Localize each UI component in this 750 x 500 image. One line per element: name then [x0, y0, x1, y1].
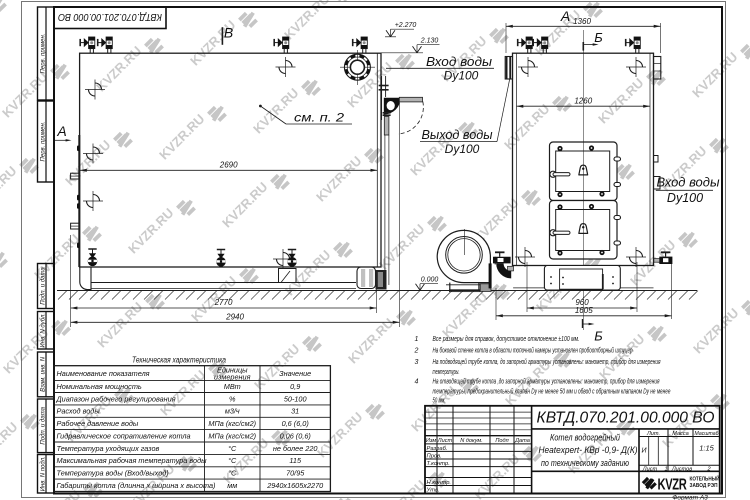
svg-text:1360: 1360: [573, 17, 591, 26]
svg-text:КОТЕЛЬНЫЙ: КОТЕЛЬНЫЙ: [690, 475, 720, 483]
svg-text:КВТД.070.201.00.000 ВО: КВТД.070.201.00.000 ВО: [58, 11, 162, 23]
svg-text:Dy100: Dy100: [667, 191, 703, 205]
svg-text:КВТД.070.201.00.000 ВО: КВТД.070.201.00.000 ВО: [537, 409, 715, 426]
svg-text:0.000: 0.000: [421, 277, 439, 284]
svg-text:Дата: Дата: [514, 438, 530, 444]
svg-text:2940: 2940: [225, 313, 244, 322]
svg-text:На боковой стенке котла в обла: На боковой стенке котла в области топочн…: [433, 347, 633, 355]
svg-text:Гидравлическое сопративление к: Гидравлическое сопративление котла: [57, 431, 191, 440]
svg-text:см. п. 2: см. п. 2: [294, 111, 344, 125]
svg-text:Значение: Значение: [279, 369, 311, 378]
svg-text:Лист: Лист: [437, 438, 453, 444]
svg-text:2: 2: [414, 348, 419, 355]
svg-text:Выход воды: Выход воды: [422, 127, 493, 142]
svg-text:Габариты котла (длинна х ширин: Габариты котла (длинна х ширина х высота…: [57, 481, 216, 490]
svg-text:Перв. примен.: Перв. примен.: [40, 34, 46, 74]
svg-text:Инв. N дубл.: Инв. N дубл.: [40, 313, 46, 348]
svg-text:Dy100: Dy100: [445, 142, 480, 156]
svg-text:2770: 2770: [214, 298, 233, 307]
svg-text:Температура воды (Вход/выход): Температура воды (Вход/выход): [57, 469, 169, 478]
svg-text:Наименование показателя: Наименование показателя: [57, 369, 150, 378]
svg-text:мм: мм: [227, 481, 237, 490]
svg-text:Масса: Масса: [672, 431, 689, 437]
svg-text:Взам. инв. N: Взам. инв. N: [40, 356, 46, 392]
svg-text:Dy100: Dy100: [444, 69, 479, 83]
svg-text:3: 3: [415, 359, 419, 366]
svg-text:°С: °С: [228, 469, 237, 478]
svg-text:Б: Б: [594, 30, 603, 45]
svg-text:Изм: Изм: [426, 438, 437, 444]
svg-text:Температура уходящих газов: Температура уходящих газов: [57, 444, 160, 453]
svg-text:Номинальная мощность: Номинальная мощность: [57, 382, 142, 391]
svg-text:Утв.: Утв.: [426, 488, 440, 494]
svg-text:А: А: [560, 8, 570, 24]
svg-text:0,06 (0,6): 0,06 (0,6): [280, 431, 311, 440]
svg-text:МВт: МВт: [224, 382, 241, 391]
svg-text:0,9: 0,9: [290, 382, 300, 391]
svg-text:Диапазон рабочего регулировани: Диапазон рабочего регулирования: [56, 394, 176, 403]
svg-text:На подводящей трубе котла, до: На подводящей трубе котла, до запорной а…: [433, 358, 661, 366]
svg-text:МПа (кгс/см2): МПа (кгс/см2): [208, 431, 256, 440]
svg-text:50 мм.: 50 мм.: [433, 398, 446, 405]
svg-text:Подп: Подп: [495, 438, 508, 444]
svg-text:Вход воды: Вход воды: [657, 175, 720, 190]
svg-text:31: 31: [291, 407, 299, 416]
svg-text:Расход воды: Расход воды: [57, 407, 101, 416]
svg-text:70/95: 70/95: [286, 469, 305, 478]
svg-text:Формат А3: Формат А3: [672, 495, 708, 500]
svg-text:1:15: 1:15: [699, 443, 714, 452]
svg-text:°С: °С: [228, 444, 237, 453]
svg-text:Вход воды: Вход воды: [426, 54, 492, 69]
svg-text:Котел водогрейный: Котел водогрейный: [550, 432, 621, 443]
svg-text:N докум.: N докум.: [460, 438, 483, 444]
svg-text:KVZR: KVZR: [658, 476, 687, 493]
svg-text:1605: 1605: [575, 306, 593, 315]
svg-text:Техническая характеристика: Техническая характеристика: [132, 356, 227, 365]
svg-text:Разраб.: Разраб.: [427, 446, 448, 452]
svg-text:Heatexpert- КВр -0,9- Д(К): Heatexpert- КВр -0,9- Д(К): [539, 445, 638, 456]
svg-text:Максимальная рабочая температу: Максимальная рабочая температура воды: [57, 456, 208, 465]
svg-text:Подп. и дата: Подп. и дата: [40, 406, 46, 444]
svg-text:не более 220: не более 220: [273, 444, 318, 453]
svg-text:°С: °С: [228, 456, 237, 465]
svg-text:115: 115: [289, 456, 302, 465]
svg-text:температуры.: температуры.: [433, 369, 460, 376]
svg-text:2690: 2690: [219, 160, 238, 169]
svg-text:2940х1605х2270: 2940х1605х2270: [266, 481, 323, 490]
svg-text:Все размеры для справок, допус: Все размеры для справок, допустимое откл…: [433, 335, 580, 343]
svg-text:1260: 1260: [574, 96, 592, 105]
svg-text:Б: Б: [594, 329, 603, 344]
svg-text:МПа (кгс/см2): МПа (кгс/см2): [208, 419, 256, 428]
svg-text:1: 1: [415, 336, 419, 343]
svg-text:ЗАВОД РЭП: ЗАВОД РЭП: [690, 483, 718, 489]
svg-text:Перв. примен.: Перв. примен.: [40, 122, 46, 162]
svg-text:%: %: [229, 394, 236, 403]
svg-text:А: А: [56, 123, 66, 139]
svg-text:+2.270: +2.270: [395, 22, 417, 29]
svg-text:Лит.: Лит.: [646, 431, 660, 437]
svg-text:4: 4: [415, 379, 419, 386]
svg-text:Масштаб: Масштаб: [695, 431, 720, 437]
svg-text:0,6 (6,0): 0,6 (6,0): [282, 419, 309, 428]
svg-text:м3/ч: м3/ч: [225, 407, 240, 416]
svg-text:50-100: 50-100: [284, 394, 307, 403]
svg-text:Пров.: Пров.: [427, 454, 442, 460]
svg-text:Листов: Листов: [671, 466, 692, 472]
svg-text:1: 1: [664, 466, 667, 472]
svg-text:по техническому заданию: по техническому заданию: [541, 458, 629, 469]
svg-text:температуры, предохранительный: температуры, предохранительный клапан Dу…: [433, 387, 671, 395]
svg-text:Рабочее давление воды: Рабочее давление воды: [57, 419, 139, 428]
svg-text:Подп. и дата: Подп. и дата: [40, 267, 46, 305]
svg-text:2.130: 2.130: [420, 38, 439, 45]
svg-text:В: В: [224, 25, 233, 41]
svg-text:Т.контр.: Т.контр.: [427, 461, 450, 467]
svg-text:На отводящей трубе котла ,до з: На отводящей трубе котла ,до запорной ар…: [433, 378, 660, 386]
svg-text:Лист: Лист: [642, 466, 658, 472]
svg-text:измерения: измерения: [214, 373, 251, 382]
svg-text:Н.контр.: Н.контр.: [427, 480, 452, 486]
svg-text:Инв. N подл.: Инв. N подл.: [40, 456, 46, 491]
